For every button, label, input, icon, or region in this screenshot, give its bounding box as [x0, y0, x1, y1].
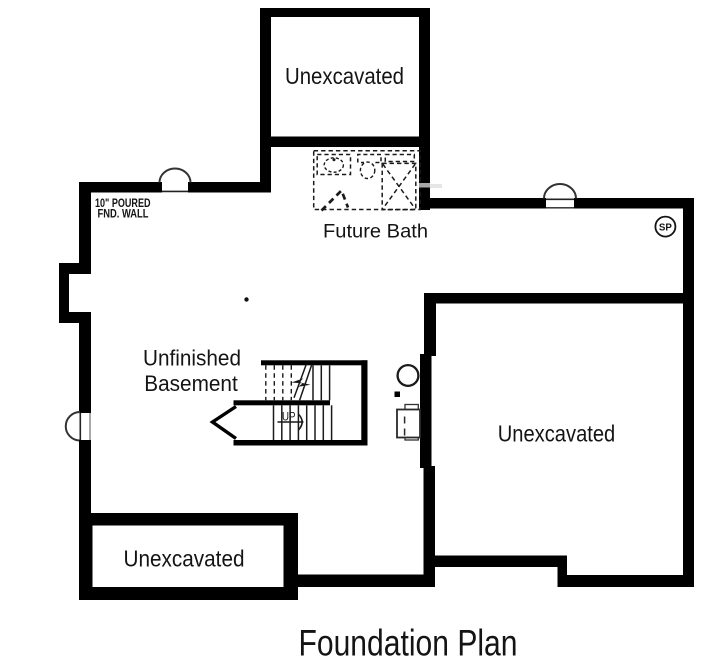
- svg-text:Foundation Plan: Foundation Plan: [299, 623, 518, 664]
- svg-text:Unexcavated: Unexcavated: [285, 63, 404, 89]
- svg-text:Unexcavated: Unexcavated: [124, 546, 245, 572]
- svg-text:SP: SP: [659, 222, 672, 234]
- svg-text:Unfinished: Unfinished: [143, 346, 241, 371]
- svg-text:Unexcavated: Unexcavated: [498, 421, 616, 447]
- svg-text:FND. WALL: FND. WALL: [98, 209, 149, 221]
- svg-text:Basement: Basement: [144, 371, 238, 396]
- svg-text:Future Bath: Future Bath: [323, 221, 428, 243]
